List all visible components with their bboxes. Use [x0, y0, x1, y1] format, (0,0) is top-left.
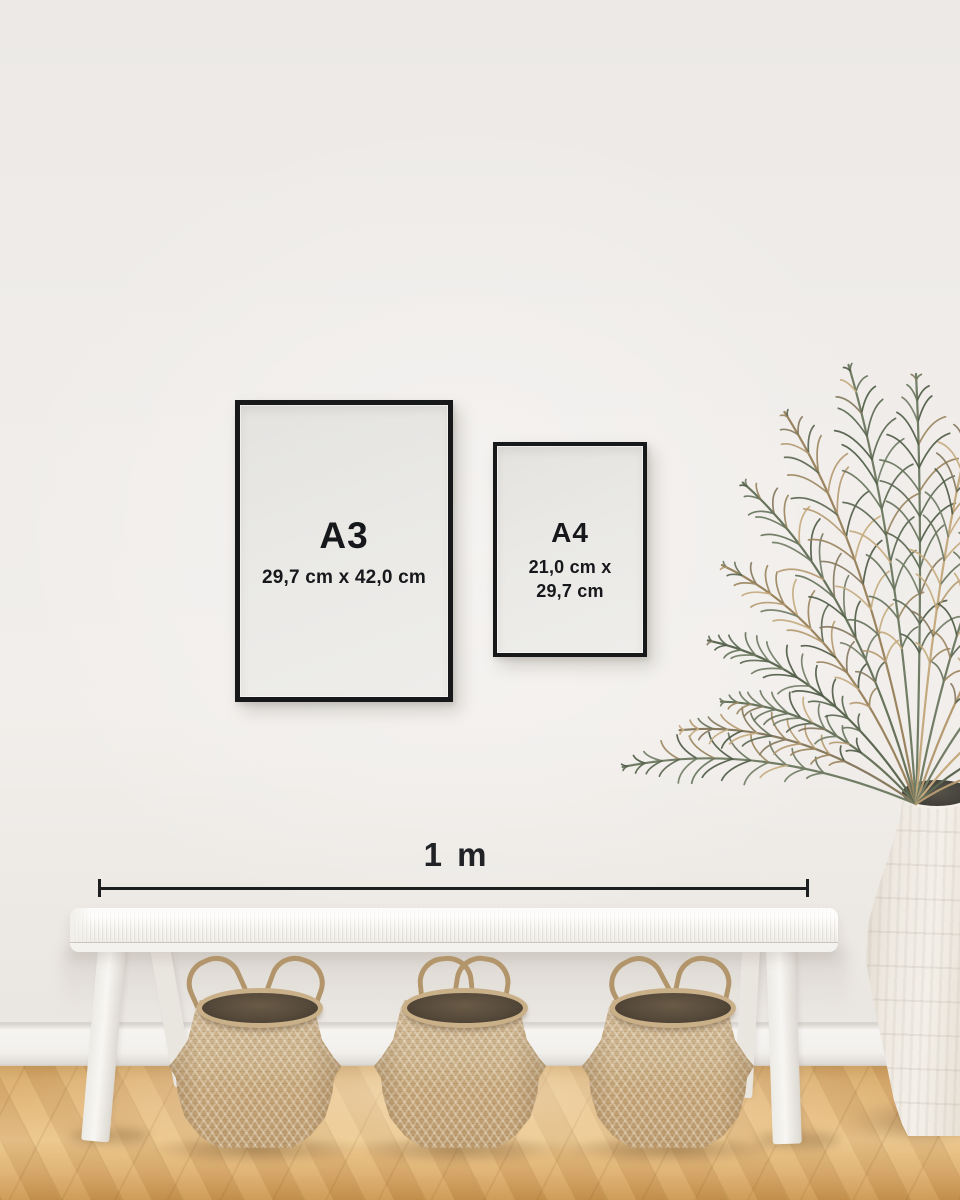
a4-dimensions-line1: 21,0 cm x — [529, 557, 612, 577]
dried-palm-plant — [600, 318, 960, 818]
scale-label: 1 m — [355, 838, 555, 871]
scale-tick-right — [806, 879, 809, 897]
a4-dimensions-line2: 29,7 cm — [536, 581, 603, 601]
a3-size-label: A3 — [319, 517, 368, 554]
basket-rim — [197, 988, 323, 1028]
seagrass-basket-right — [575, 1000, 761, 1148]
seagrass-basket-middle — [367, 1000, 553, 1148]
a3-poster-paper: A3 29,7 cm x 42,0 cm — [240, 405, 448, 697]
size-guide-room-scene: A3 29,7 cm x 42,0 cm A4 21,0 cm x 29,7 c… — [0, 0, 960, 1200]
basket-rim — [610, 988, 736, 1028]
scale-line — [100, 887, 809, 890]
a4-dimensions-label: 21,0 cm x 29,7 cm — [529, 556, 612, 604]
a3-dimensions-label: 29,7 cm x 42,0 cm — [262, 567, 426, 589]
a3-frame: A3 29,7 cm x 42,0 cm — [235, 400, 453, 702]
basket-rim — [402, 988, 528, 1028]
seagrass-basket-left — [162, 1000, 348, 1148]
a4-size-label: A4 — [551, 519, 589, 547]
bench-woven-seat — [70, 908, 838, 952]
scale-tick-left — [98, 879, 101, 897]
